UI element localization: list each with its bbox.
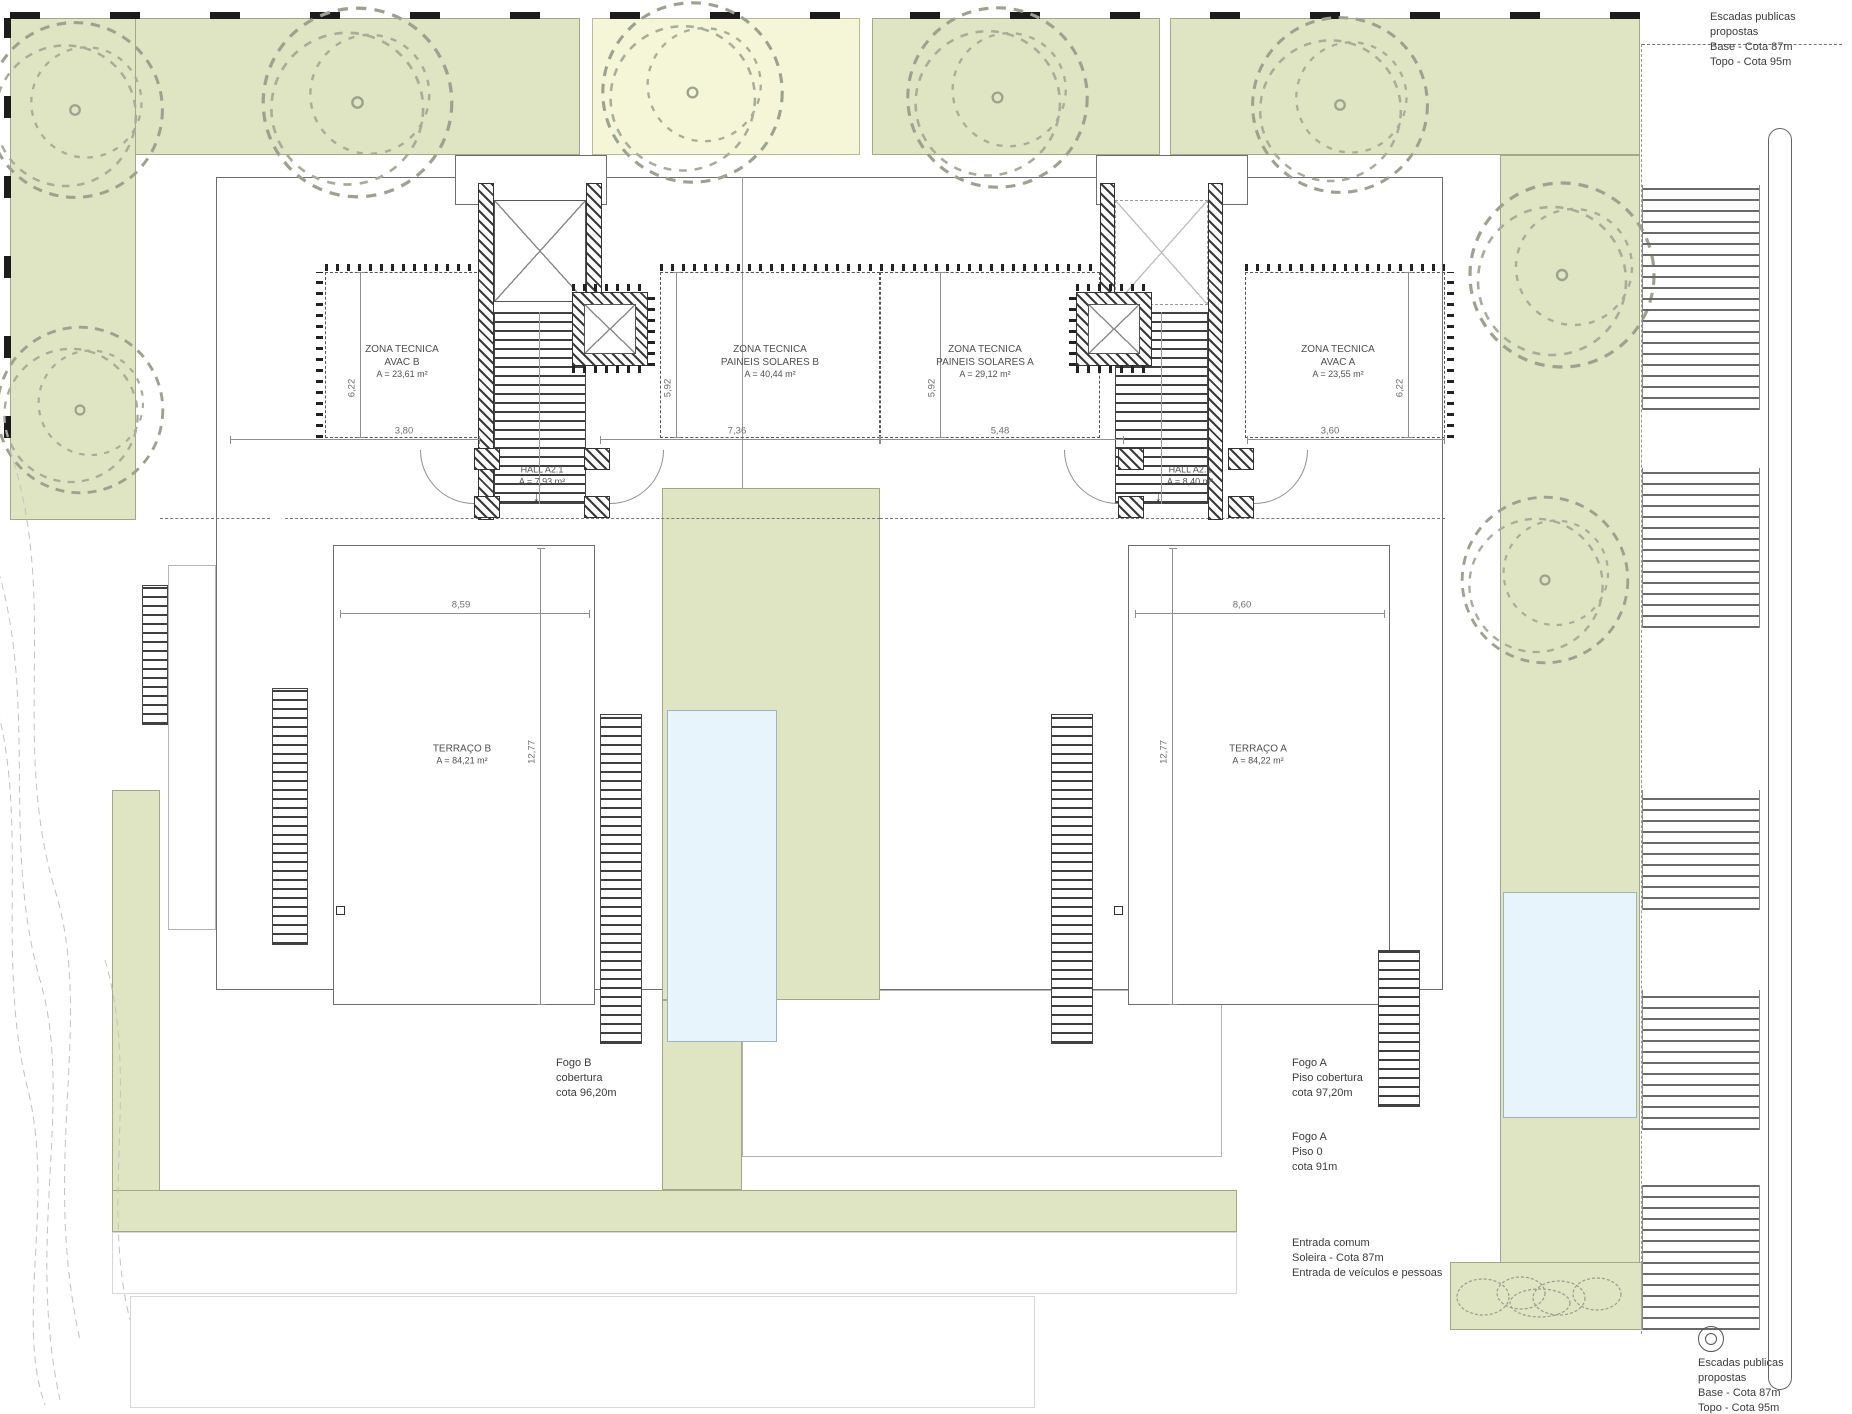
door-marker	[336, 906, 345, 915]
hall-b-label: HALL A2.1 A = 7,93 m²	[519, 464, 565, 487]
label-line: A = 84,22 m²	[1229, 756, 1287, 768]
public-stairs-band	[1642, 185, 1760, 410]
dimension-line	[1247, 439, 1445, 440]
entrance-note: Entrada comum Soleira - Cota 87m Entrada…	[1292, 1236, 1442, 1281]
zone-tick-border	[660, 264, 880, 271]
label-line: A = 84,21 m²	[433, 756, 491, 768]
label-line: HALL A2.1	[519, 464, 565, 476]
zone-tick-border	[1447, 272, 1454, 438]
tree-icon	[1455, 490, 1635, 670]
tree-icon	[900, 0, 1095, 195]
duct-b-ticks	[648, 292, 655, 366]
tree-icon	[1245, 10, 1435, 200]
label-line: Piso cobertura	[1292, 1071, 1363, 1086]
zone-label-solar-a: ZONA TECNICA PAINEIS SOLARES A A = 29,12…	[936, 343, 1034, 381]
tree-icon	[255, 0, 460, 205]
dimension-label: 5,92	[927, 379, 938, 398]
terrace-b-label: TERRAÇO B A = 84,21 m²	[433, 743, 491, 768]
public-stairs-band	[1642, 1185, 1760, 1330]
dimension-label: 12,77	[527, 740, 538, 764]
duct-a-ticks	[1069, 292, 1076, 366]
hall-b-pier	[474, 448, 500, 470]
label-line: ZONA TECNICA	[721, 343, 819, 356]
zone-label-avac-b: ZONA TECNICA AVAC B A = 23,61 m²	[365, 343, 439, 381]
piso0-plate	[742, 990, 1222, 1157]
label-line: HALL A2.1	[1167, 464, 1213, 476]
fogo-a-cobertura-note: Fogo A Piso cobertura cota 97,20m	[1292, 1056, 1363, 1101]
label-line: Piso 0	[1292, 1145, 1337, 1160]
label-line: cota 97,20m	[1292, 1086, 1363, 1101]
label-line: AVAC B	[365, 356, 439, 369]
label-line: cota 91m	[1292, 1160, 1337, 1175]
dimension-label: 8,59	[452, 600, 471, 611]
hall-b-pier	[584, 496, 610, 518]
label-line: A = 40,44 m²	[721, 369, 819, 381]
duct-a-ticks	[1076, 366, 1152, 373]
hall-a-pier	[1118, 448, 1144, 470]
shrub-scribble-icon	[1455, 1265, 1637, 1327]
label-line: ZONA TECNICA	[1301, 343, 1375, 356]
zone-boundary-dashed	[285, 518, 880, 519]
zone-tick-border	[325, 264, 482, 271]
zone-tick-border	[1245, 264, 1445, 271]
green-area-bottom-band	[112, 1190, 1237, 1232]
dimension-line	[540, 548, 541, 1005]
louver-band	[1051, 714, 1093, 1044]
stair-run-a-centerline	[1161, 312, 1162, 504]
public-stairs-band	[1642, 468, 1760, 628]
hall-a-pier	[1228, 448, 1254, 470]
dimension-label: 5,48	[991, 426, 1010, 437]
dimension-line	[880, 439, 1124, 440]
terrace-b-outline	[333, 545, 595, 1005]
dimension-line	[676, 272, 677, 438]
dimension-line	[360, 272, 361, 438]
label-line: Entrada comum	[1292, 1236, 1442, 1251]
tree-icon	[0, 15, 170, 205]
zone-label-solar-b: ZONA TECNICA PAINEIS SOLARES B A = 40,44…	[721, 343, 819, 381]
label-line: Base - Cota 87m	[1710, 40, 1796, 55]
label-line: Escadas publicas	[1698, 1356, 1784, 1371]
public-stairs-note-top: Escadas publicas propostas Base - Cota 8…	[1710, 10, 1796, 69]
label-line: PAINEIS SOLARES A	[936, 356, 1034, 369]
louver-band	[1378, 950, 1420, 1107]
label-line: Escadas publicas	[1710, 10, 1796, 25]
column-marker-inner	[1705, 1333, 1717, 1345]
label-line: Topo - Cota 95m	[1698, 1401, 1784, 1414]
dimension-label: 3,80	[395, 426, 414, 437]
label-line: A = 8,40 m²	[1167, 476, 1213, 488]
terrace-a-outline	[1128, 545, 1390, 1005]
zone-boundary-dashed	[880, 518, 1445, 519]
label-line: Fogo A	[1292, 1130, 1337, 1145]
label-line: A = 29,12 m²	[936, 369, 1034, 381]
duct-b-ticks	[572, 284, 648, 291]
duct-a-shaft	[1088, 304, 1140, 354]
label-line: A = 23,55 m²	[1301, 369, 1375, 381]
dimension-label: 7,36	[728, 426, 747, 437]
label-line: Base - Cota 87m	[1698, 1386, 1784, 1401]
pool-central	[667, 710, 777, 1042]
floor-plan: ↓ ↓ 3,80 7,36 5,48 3,60 8,	[0, 0, 1852, 1414]
zone-tick-border	[880, 264, 1100, 271]
label-line: Fogo B	[556, 1056, 617, 1071]
zone-boundary-dashed	[160, 518, 270, 519]
hall-a-pier	[1118, 496, 1144, 518]
label-line: TERRAÇO A	[1229, 743, 1287, 756]
duct-a-ticks	[1076, 284, 1152, 291]
label-line: cobertura	[556, 1071, 617, 1086]
terrace-a-label: TERRAÇO A A = 84,22 m²	[1229, 743, 1287, 768]
contour-lines	[0, 440, 230, 1414]
label-line: propostas	[1698, 1371, 1784, 1386]
label-line: ZONA TECNICA	[936, 343, 1034, 356]
tree-icon	[1462, 175, 1662, 375]
lower-lot-outline	[130, 1296, 1035, 1408]
fogo-a-piso0-note: Fogo A Piso 0 cota 91m	[1292, 1130, 1337, 1175]
duct-b-shaft	[584, 304, 636, 354]
louver-band	[272, 688, 308, 945]
stair-direction-arrow: ↓	[533, 490, 540, 503]
stair-core-cap-a	[1096, 155, 1248, 205]
label-line: propostas	[1710, 25, 1796, 40]
dimension-line	[340, 613, 590, 614]
dimension-label: 3,60	[1321, 426, 1340, 437]
label-line: A = 23,61 m²	[365, 369, 439, 381]
tree-icon	[595, 0, 790, 190]
label-line: cota 96,20m	[556, 1086, 617, 1101]
fogo-b-note: Fogo B cobertura cota 96,20m	[556, 1056, 617, 1101]
zone-label-avac-a: ZONA TECNICA AVAC A A = 23,55 m²	[1301, 343, 1375, 381]
label-line: AVAC A	[1301, 356, 1375, 369]
dimension-line	[1408, 272, 1409, 438]
door-marker	[1114, 906, 1123, 915]
label-line: Fogo A	[1292, 1056, 1363, 1071]
label-line: Topo - Cota 95m	[1710, 55, 1796, 70]
dimension-line	[1172, 548, 1173, 1005]
label-line: ZONA TECNICA	[365, 343, 439, 356]
label-line: TERRAÇO B	[433, 743, 491, 756]
public-stairs-band	[1642, 790, 1760, 910]
label-line: PAINEIS SOLARES B	[721, 356, 819, 369]
public-stairs-note-bottom: Escadas publicas propostas Base - Cota 8…	[1698, 1356, 1784, 1414]
louver-band	[600, 714, 642, 1044]
driveway-area	[112, 1232, 1237, 1294]
dimension-label: 8,60	[1233, 600, 1252, 611]
label-line: Soleira - Cota 87m	[1292, 1251, 1442, 1266]
dimension-line	[600, 439, 880, 440]
public-stairs-band	[1642, 990, 1760, 1130]
dimension-label: 5,92	[663, 379, 674, 398]
hall-b-pier	[584, 448, 610, 470]
duct-b-ticks	[572, 366, 648, 373]
stair-direction-arrow: ↓	[1155, 490, 1162, 503]
handrail-path	[1768, 128, 1792, 1390]
dimension-line	[230, 439, 480, 440]
dimension-label: 12,77	[1159, 740, 1170, 764]
dimension-label: 6,22	[1395, 379, 1406, 398]
label-line: Entrada de veículos e pessoas	[1292, 1266, 1442, 1281]
hall-a-label: HALL A2.1 A = 8,40 m²	[1167, 464, 1213, 487]
hall-a-pier	[1228, 496, 1254, 518]
label-line: A = 7,93 m²	[519, 476, 565, 488]
hall-b-pier	[474, 496, 500, 518]
dimension-label: 6,22	[347, 379, 358, 398]
pool-right	[1503, 892, 1637, 1118]
zone-tick-border	[316, 272, 323, 438]
